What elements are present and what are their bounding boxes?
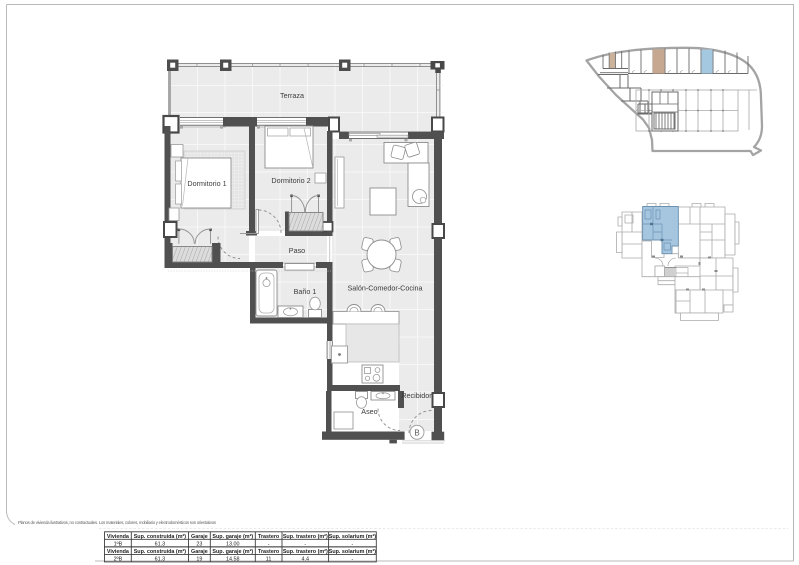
svg-text:Sup. construida (m²): Sup. construida (m²) <box>134 549 187 555</box>
svg-text:11: 11 <box>266 556 272 562</box>
svg-text:Vivienda: Vivienda <box>107 534 130 540</box>
svg-text:Trastero: Trastero <box>258 534 280 540</box>
svg-text:Aseo: Aseo <box>361 407 377 416</box>
svg-text:Salón-Comedor-Cocina: Salón-Comedor-Cocina <box>347 284 422 293</box>
svg-text:Baño 1: Baño 1 <box>294 287 317 296</box>
svg-text:61.3: 61.3 <box>155 541 166 547</box>
svg-text:-: - <box>268 541 270 547</box>
svg-text:14.58: 14.58 <box>226 556 240 562</box>
svg-text:Sup. trastero (m²): Sup. trastero (m²) <box>283 534 328 540</box>
svg-text:-: - <box>352 541 354 547</box>
svg-text:23: 23 <box>196 541 202 547</box>
svg-text:4.4: 4.4 <box>302 556 310 562</box>
svg-text:Recibidor: Recibidor <box>401 391 432 400</box>
svg-text:19: 19 <box>196 556 202 562</box>
svg-text:Sup. solarium (m²): Sup. solarium (m²) <box>329 534 377 540</box>
svg-text:-: - <box>304 541 306 547</box>
svg-text:2ºB: 2ºB <box>114 556 123 562</box>
svg-text:B: B <box>414 428 419 437</box>
svg-text:Sup. trastero (m²): Sup. trastero (m²) <box>283 549 328 555</box>
svg-text:13.00: 13.00 <box>226 541 240 547</box>
svg-text:Planos de vivienda ilustrativo: Planos de vivienda ilustrativos, no cont… <box>18 520 216 525</box>
svg-text:Trastero: Trastero <box>258 549 280 555</box>
svg-text:Garaje: Garaje <box>191 549 208 555</box>
svg-text:Garaje: Garaje <box>191 534 208 540</box>
svg-text:Sup. garaje (m²): Sup. garaje (m²) <box>212 549 253 555</box>
svg-text:Dormitorio 1: Dormitorio 1 <box>187 179 226 188</box>
svg-text:Sup. garaje (m²): Sup. garaje (m²) <box>212 534 253 540</box>
svg-text:Sup. construida (m²): Sup. construida (m²) <box>134 534 187 540</box>
svg-text:Dormitorio 2: Dormitorio 2 <box>271 176 310 185</box>
svg-text:Terraza: Terraza <box>280 91 304 100</box>
svg-text:Sup. solarium (m²): Sup. solarium (m²) <box>329 549 377 555</box>
svg-text:Paso: Paso <box>289 246 305 255</box>
svg-text:61.3: 61.3 <box>155 556 166 562</box>
svg-text:1ºB: 1ºB <box>114 541 123 547</box>
svg-text:-: - <box>352 556 354 562</box>
svg-text:Vivienda: Vivienda <box>107 549 130 555</box>
